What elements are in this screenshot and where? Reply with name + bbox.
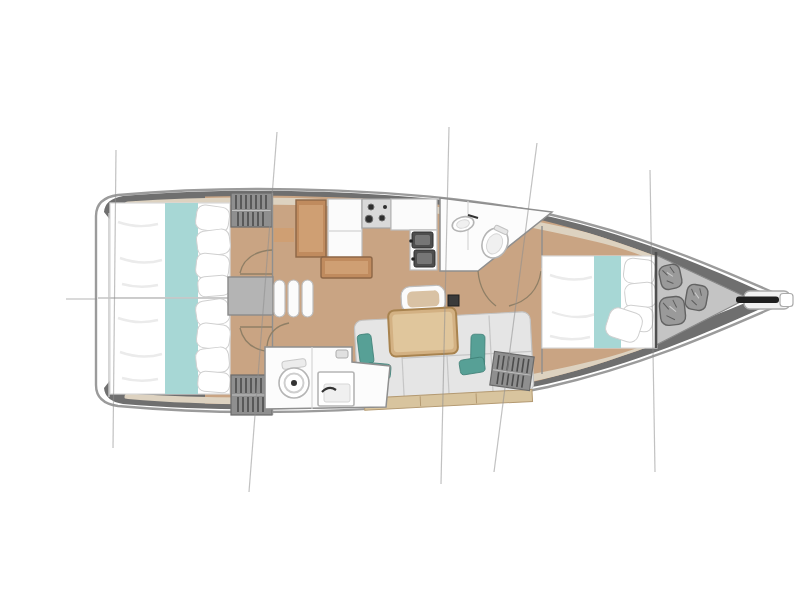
- salon-hanging-locker: [490, 351, 534, 390]
- toilet-drain: [291, 380, 297, 386]
- nav-table-top: [325, 261, 368, 274]
- pillow: [196, 228, 232, 257]
- pillow: [194, 204, 230, 233]
- step: [274, 280, 285, 317]
- galley-counter: [391, 199, 437, 230]
- galley-cabinet: [328, 199, 362, 258]
- anchor-roller: [736, 297, 779, 304]
- burner: [379, 215, 385, 221]
- wardrobe-port: [231, 193, 272, 227]
- step: [288, 280, 299, 317]
- washbasin: [324, 384, 350, 402]
- bowsprit: [736, 291, 793, 309]
- stowed-bag: [684, 283, 709, 311]
- burner-knob: [383, 205, 387, 209]
- yacht-floor-plan-canvas: [0, 0, 800, 600]
- floor-plan-svg: [0, 0, 800, 600]
- aft-cabin-starboard: [110, 298, 231, 394]
- stowed-bag: [659, 296, 687, 326]
- pillow: [196, 322, 232, 351]
- stove: [362, 199, 391, 228]
- burner: [365, 215, 373, 223]
- sink-basin: [415, 235, 430, 245]
- companionway-landing: [228, 277, 273, 315]
- aft-cabin-port: [110, 203, 231, 298]
- step: [302, 280, 313, 317]
- mast-base: [448, 295, 459, 306]
- side-shelf: [274, 228, 294, 242]
- sink-basin: [417, 253, 432, 264]
- soap-dispenser: [336, 350, 348, 358]
- aft-port-bed-runner: [165, 203, 198, 298]
- faucet: [409, 239, 413, 243]
- nav-seat-cushion: [299, 205, 323, 252]
- bow-fitting: [780, 294, 793, 307]
- aft-starboard-bed-runner: [165, 298, 198, 394]
- pillow: [197, 275, 231, 298]
- burner: [368, 204, 374, 210]
- faucet: [411, 257, 415, 261]
- pillow: [197, 371, 231, 394]
- pillow: [195, 346, 230, 374]
- pillow: [194, 298, 230, 327]
- salon-bench-cushion: [407, 290, 440, 308]
